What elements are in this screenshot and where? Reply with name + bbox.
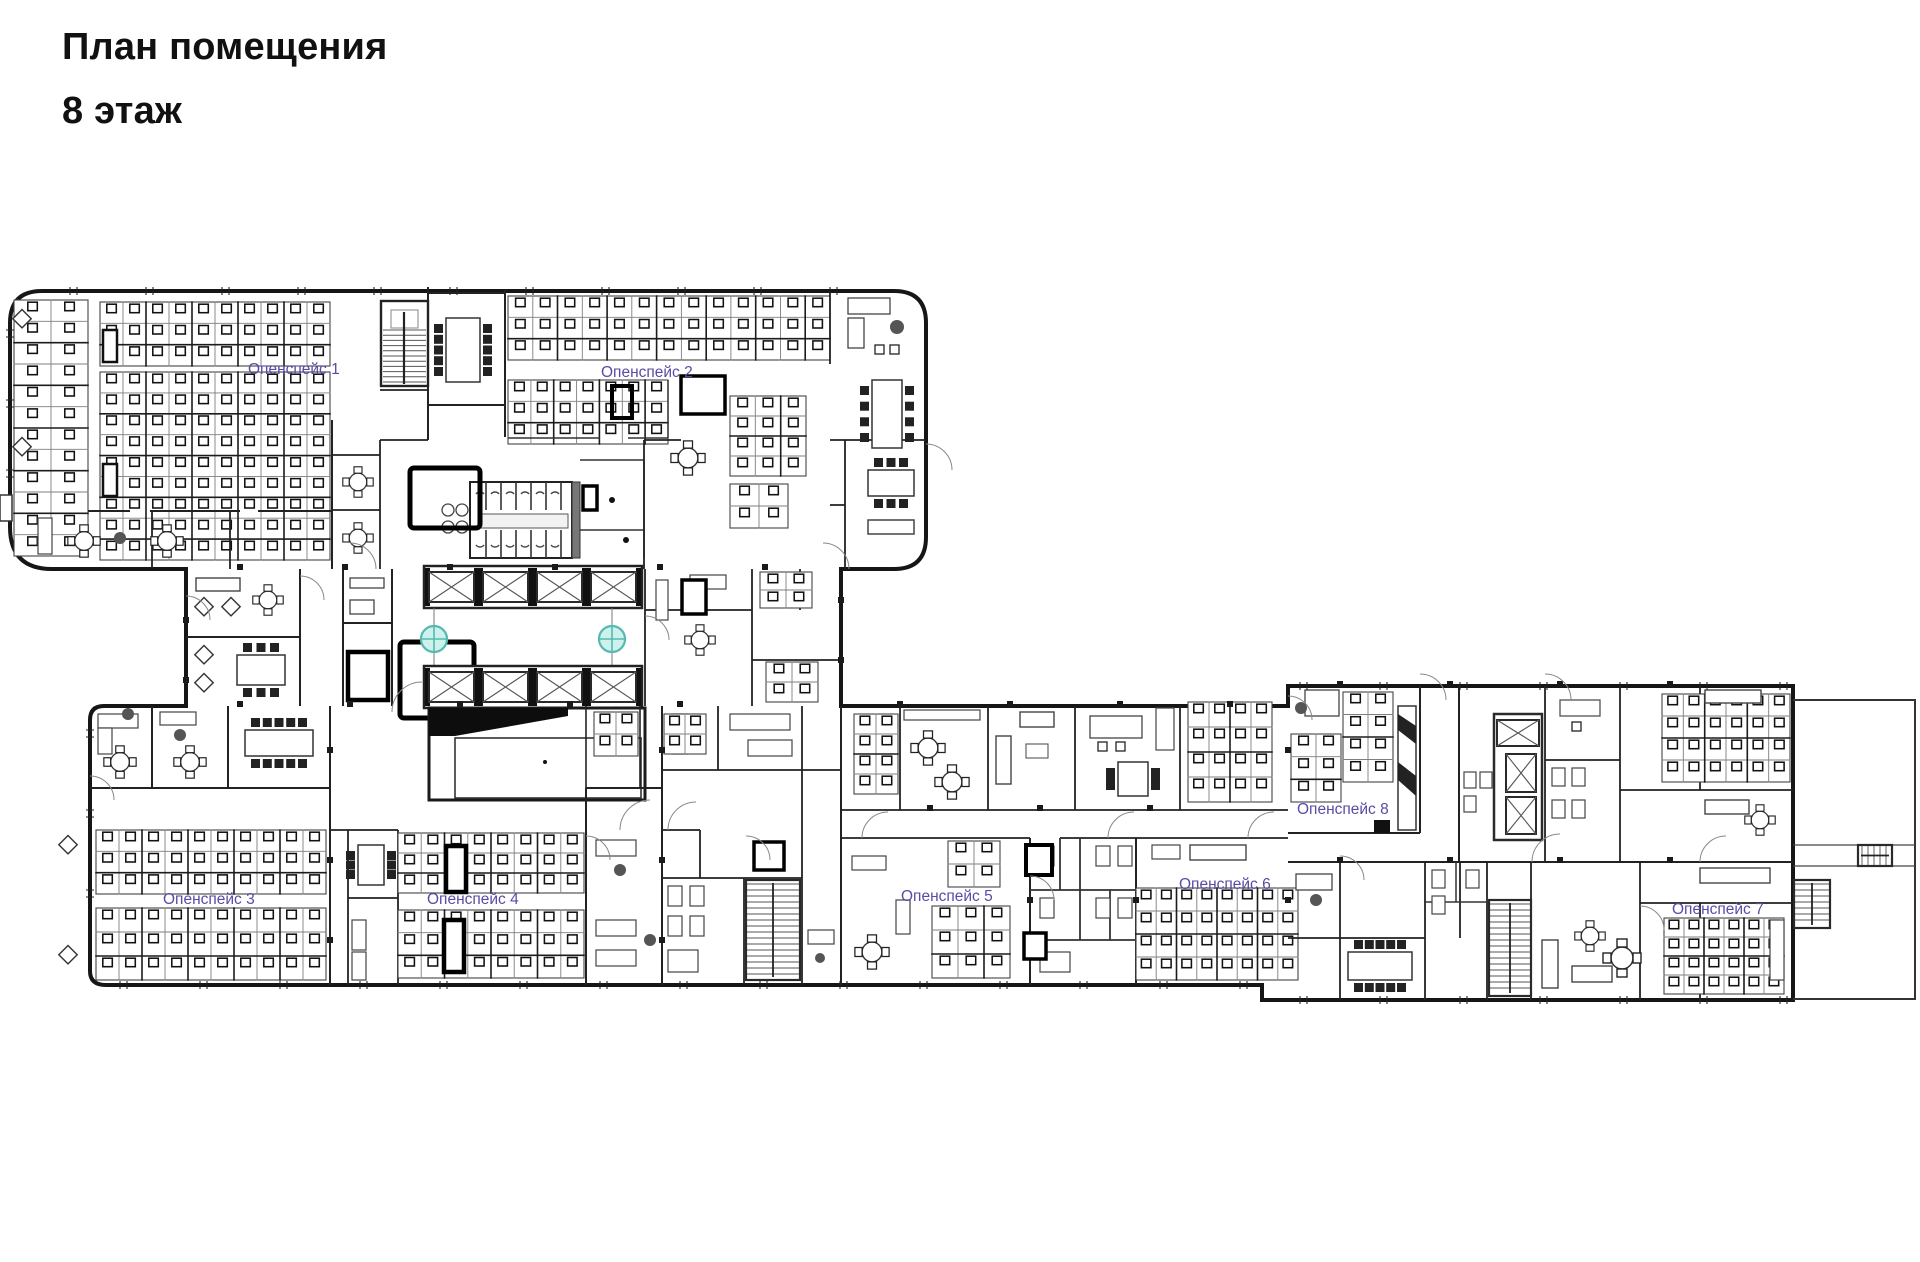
svg-text:Опенспейс 3: Опенспейс 3 bbox=[163, 891, 255, 908]
svg-text:Опенспейс 1: Опенспейс 1 bbox=[248, 361, 340, 378]
svg-text:Опенспейс 5: Опенспейс 5 bbox=[901, 888, 993, 905]
svg-text:Опенспейс 4: Опенспейс 4 bbox=[427, 891, 519, 908]
svg-text:План помещения: План помещения bbox=[62, 26, 388, 68]
svg-text:Опенспейс 8: Опенспейс 8 bbox=[1297, 801, 1389, 818]
svg-text:Опенспейс 7: Опенспейс 7 bbox=[1672, 901, 1764, 918]
svg-text:Опенспейс 6: Опенспейс 6 bbox=[1179, 876, 1271, 893]
svg-text:8 этаж: 8 этаж bbox=[62, 90, 183, 132]
svg-text:Опенспейс 2: Опенспейс 2 bbox=[601, 364, 693, 381]
